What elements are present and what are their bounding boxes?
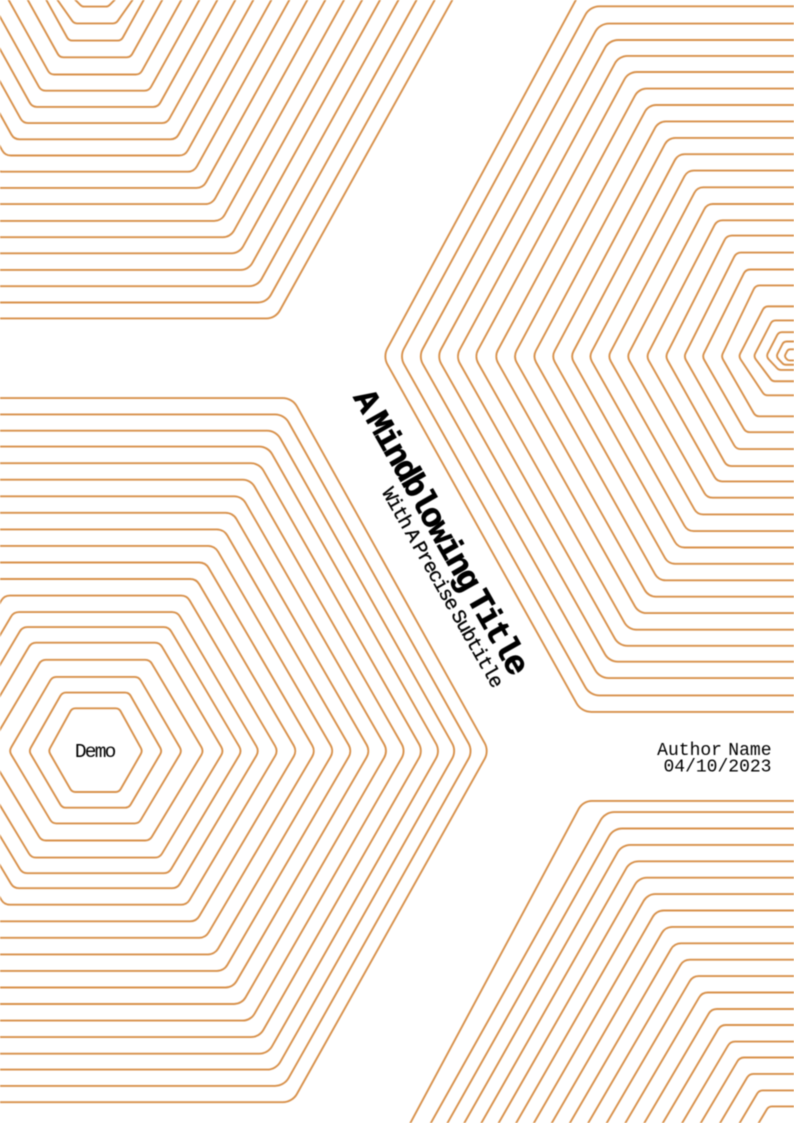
- svg-text:Demo: Demo: [75, 741, 116, 763]
- svg-text:A Mindblowing Title: A Mindblowing Title: [343, 384, 534, 682]
- svg-text:04/10/2023: 04/10/2023: [663, 758, 771, 778]
